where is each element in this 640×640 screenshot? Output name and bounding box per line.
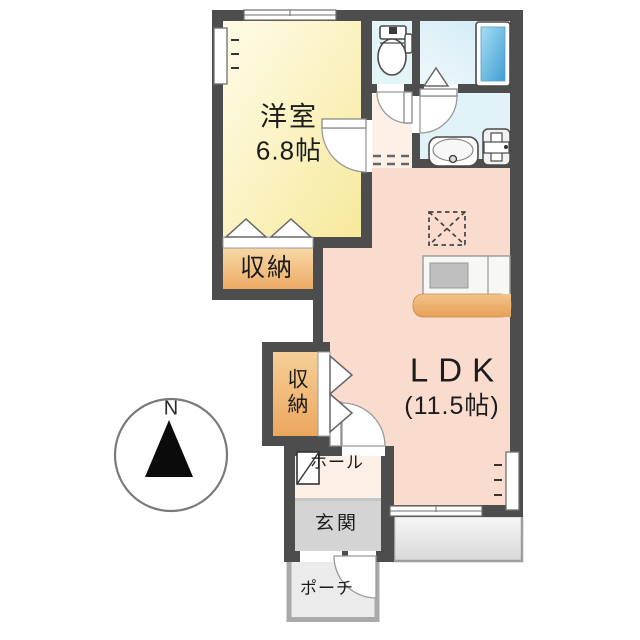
terrace xyxy=(394,516,522,561)
floorplan-drawing xyxy=(0,0,640,640)
closet-upper-label: 収納 xyxy=(240,255,294,281)
western-room-label: 洋室 xyxy=(260,103,318,131)
porch-label: ポーチ xyxy=(300,580,354,598)
washbasin-icon xyxy=(429,137,478,166)
entrance-label: 玄関 xyxy=(315,514,359,534)
ldk-label: LDK xyxy=(400,354,504,389)
closet-lower-label: 収納 xyxy=(285,368,307,418)
window-top xyxy=(244,10,336,20)
kitchen-counter-icon xyxy=(413,256,511,317)
window-ldk-south xyxy=(390,506,482,516)
ldk-size: (11.5帖) xyxy=(404,393,499,419)
compass-north-label: N xyxy=(164,399,178,420)
hall-label: ホール xyxy=(310,454,364,472)
western-room-size: 6.8帖 xyxy=(256,137,322,164)
floorplan-canvas: 洋室 6.8帖 収納 収納 LDK (11.5帖) ホール 玄関 ポーチ N xyxy=(0,0,640,640)
bathtub-icon xyxy=(476,22,510,86)
washing-machine-pan-icon xyxy=(483,129,510,165)
hall-entrance-divider xyxy=(295,498,381,501)
